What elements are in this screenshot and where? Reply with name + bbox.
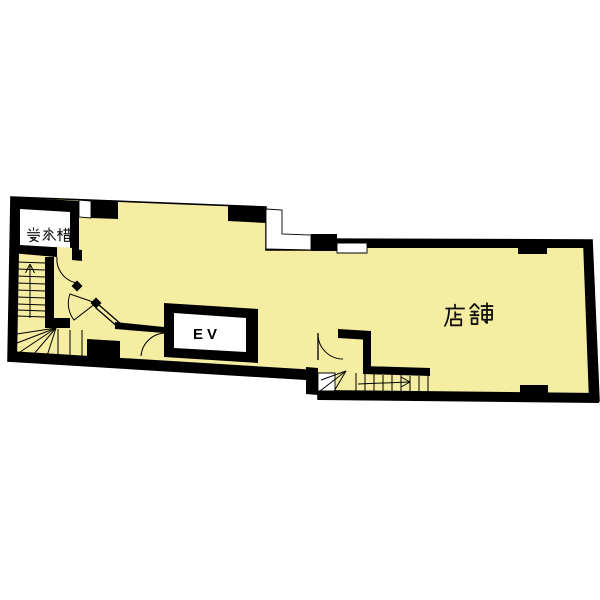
top-wall-fill-c xyxy=(228,205,266,223)
floor-plan-page: 受水槽 店舗 xyxy=(0,0,600,600)
water-tank-doorway xyxy=(57,247,72,260)
top-left-window xyxy=(79,200,91,218)
top-wall-fill-b xyxy=(91,200,118,219)
elevator-label: EV xyxy=(193,326,221,343)
step-wall-fill xyxy=(311,234,337,251)
door-jamb-stub xyxy=(72,249,82,261)
bottom-stair-wall-b xyxy=(363,339,371,369)
pillar-top-right xyxy=(518,240,547,254)
top-step-notch xyxy=(266,209,311,250)
pillar-bottom-right xyxy=(520,385,548,402)
floor-plan-drawing: EV xyxy=(0,0,600,600)
water-tank-room xyxy=(20,209,70,248)
pillar-bottom-left xyxy=(87,339,120,360)
shop-top-window xyxy=(337,243,367,253)
